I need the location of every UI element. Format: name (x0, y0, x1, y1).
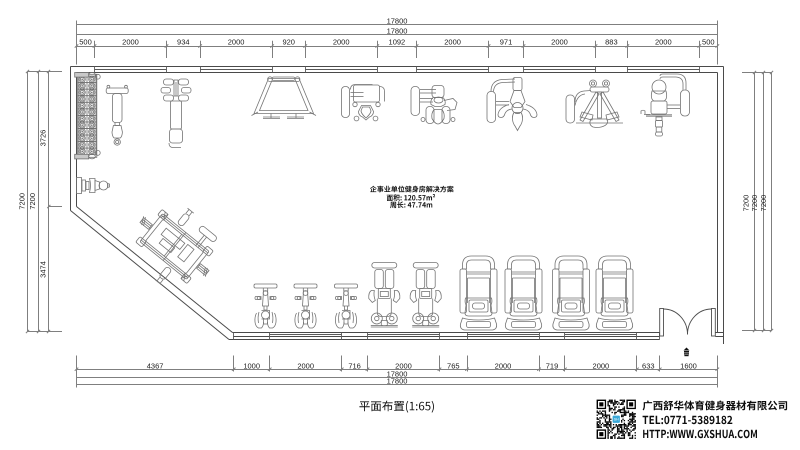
svg-text:2000: 2000 (333, 38, 350, 47)
svg-text:934: 934 (177, 38, 190, 47)
svg-text:1000: 1000 (243, 361, 260, 370)
svg-text:17800: 17800 (387, 16, 408, 25)
svg-text:17800: 17800 (387, 27, 408, 36)
svg-text:2000: 2000 (297, 361, 314, 370)
svg-text:7200: 7200 (750, 195, 759, 212)
svg-text:1092: 1092 (389, 38, 406, 47)
svg-text:7200: 7200 (741, 195, 750, 212)
svg-text:716: 716 (348, 361, 361, 370)
svg-text:920: 920 (282, 38, 295, 47)
svg-text:500: 500 (702, 38, 715, 47)
svg-text:633: 633 (642, 361, 655, 370)
svg-text:719: 719 (546, 361, 559, 370)
svg-text:971: 971 (500, 38, 513, 47)
svg-text:3474: 3474 (39, 261, 48, 278)
svg-text:2000: 2000 (122, 38, 139, 47)
svg-text:500: 500 (79, 38, 92, 47)
svg-text:765: 765 (447, 361, 460, 370)
svg-text:4367: 4367 (147, 361, 164, 370)
svg-text:2000: 2000 (551, 38, 568, 47)
svg-text:883: 883 (605, 38, 618, 47)
svg-text:2000: 2000 (655, 38, 672, 47)
svg-text:7200: 7200 (28, 193, 37, 210)
svg-text:2000: 2000 (593, 361, 610, 370)
svg-text:2000: 2000 (228, 38, 245, 47)
svg-text:3726: 3726 (39, 130, 48, 147)
svg-text:17800: 17800 (387, 377, 408, 386)
svg-text:1600: 1600 (680, 361, 697, 370)
svg-text:7200: 7200 (18, 193, 27, 210)
svg-text:2000: 2000 (444, 38, 461, 47)
svg-text:2000: 2000 (495, 361, 512, 370)
svg-text:7200: 7200 (759, 195, 768, 212)
svg-text:SH: SH (614, 418, 619, 422)
